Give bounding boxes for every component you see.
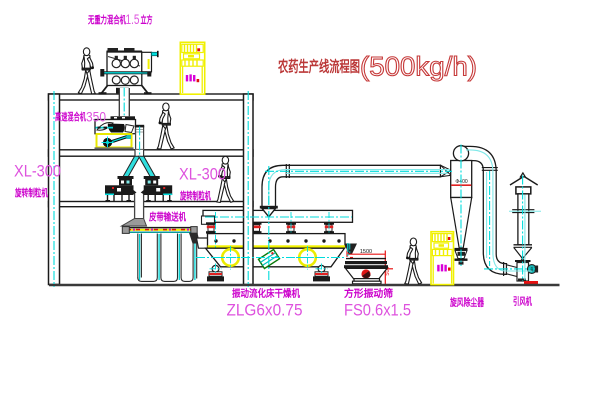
svg-text:350: 350: [86, 110, 106, 125]
svg-text:ZLG6x0.75: ZLG6x0.75: [227, 302, 303, 320]
svg-text:XL-300: XL-300: [14, 163, 61, 181]
svg-text:旋风除尘器: 旋风除尘器: [449, 296, 484, 309]
svg-text:旋转制粒机: 旋转制粒机: [179, 190, 211, 203]
svg-text:1500: 1500: [360, 249, 372, 255]
svg-text:Φ400: Φ400: [455, 179, 468, 185]
svg-text:农药生产线流程图: 农药生产线流程图: [277, 58, 360, 76]
svg-text:高速混合机: 高速混合机: [55, 111, 86, 124]
svg-text:皮带输送机: 皮带输送机: [148, 211, 186, 224]
svg-text:振动流化床干燥机: 振动流化床干燥机: [232, 287, 300, 300]
svg-text:1.5: 1.5: [126, 12, 140, 27]
svg-text:立方: 立方: [141, 14, 153, 27]
svg-text:方形振动筛: 方形振动筛: [344, 287, 393, 300]
svg-text:旋转制粒机: 旋转制粒机: [14, 187, 48, 200]
svg-text:(500kg/h): (500kg/h): [360, 52, 477, 82]
svg-text:FS0.6x1.5: FS0.6x1.5: [344, 302, 411, 320]
svg-text:无重力混合机: 无重力混合机: [87, 14, 126, 27]
svg-text:引风机: 引风机: [513, 295, 532, 308]
svg-text:XL-300: XL-300: [179, 166, 226, 184]
